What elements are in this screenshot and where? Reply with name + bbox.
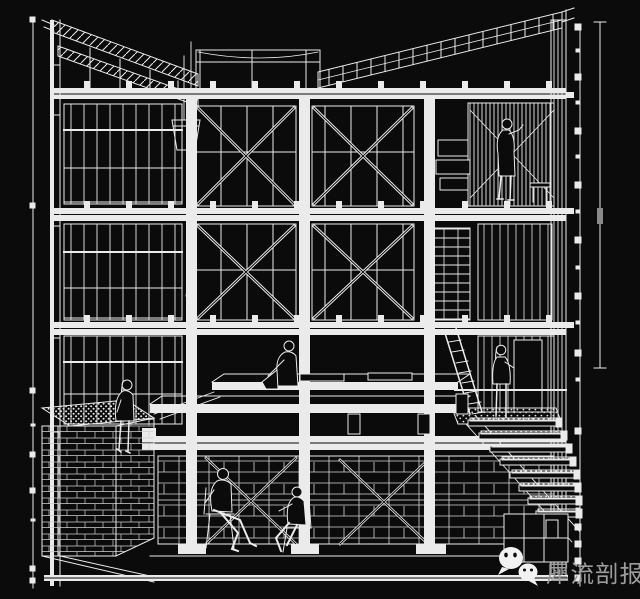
building-section-drawing: 犀流剖报 <box>0 0 640 599</box>
right-ruler <box>575 22 606 586</box>
watermark: 犀流剖报 <box>498 547 640 588</box>
right-dimension-bracket <box>594 22 606 368</box>
watermark-text: 犀流剖报 <box>546 560 640 588</box>
section-drawing-canvas: 犀流剖报 <box>0 0 640 599</box>
left-ruler <box>30 17 35 588</box>
figure-seated-person-center-deck <box>262 341 298 389</box>
planted-counter <box>42 400 154 556</box>
